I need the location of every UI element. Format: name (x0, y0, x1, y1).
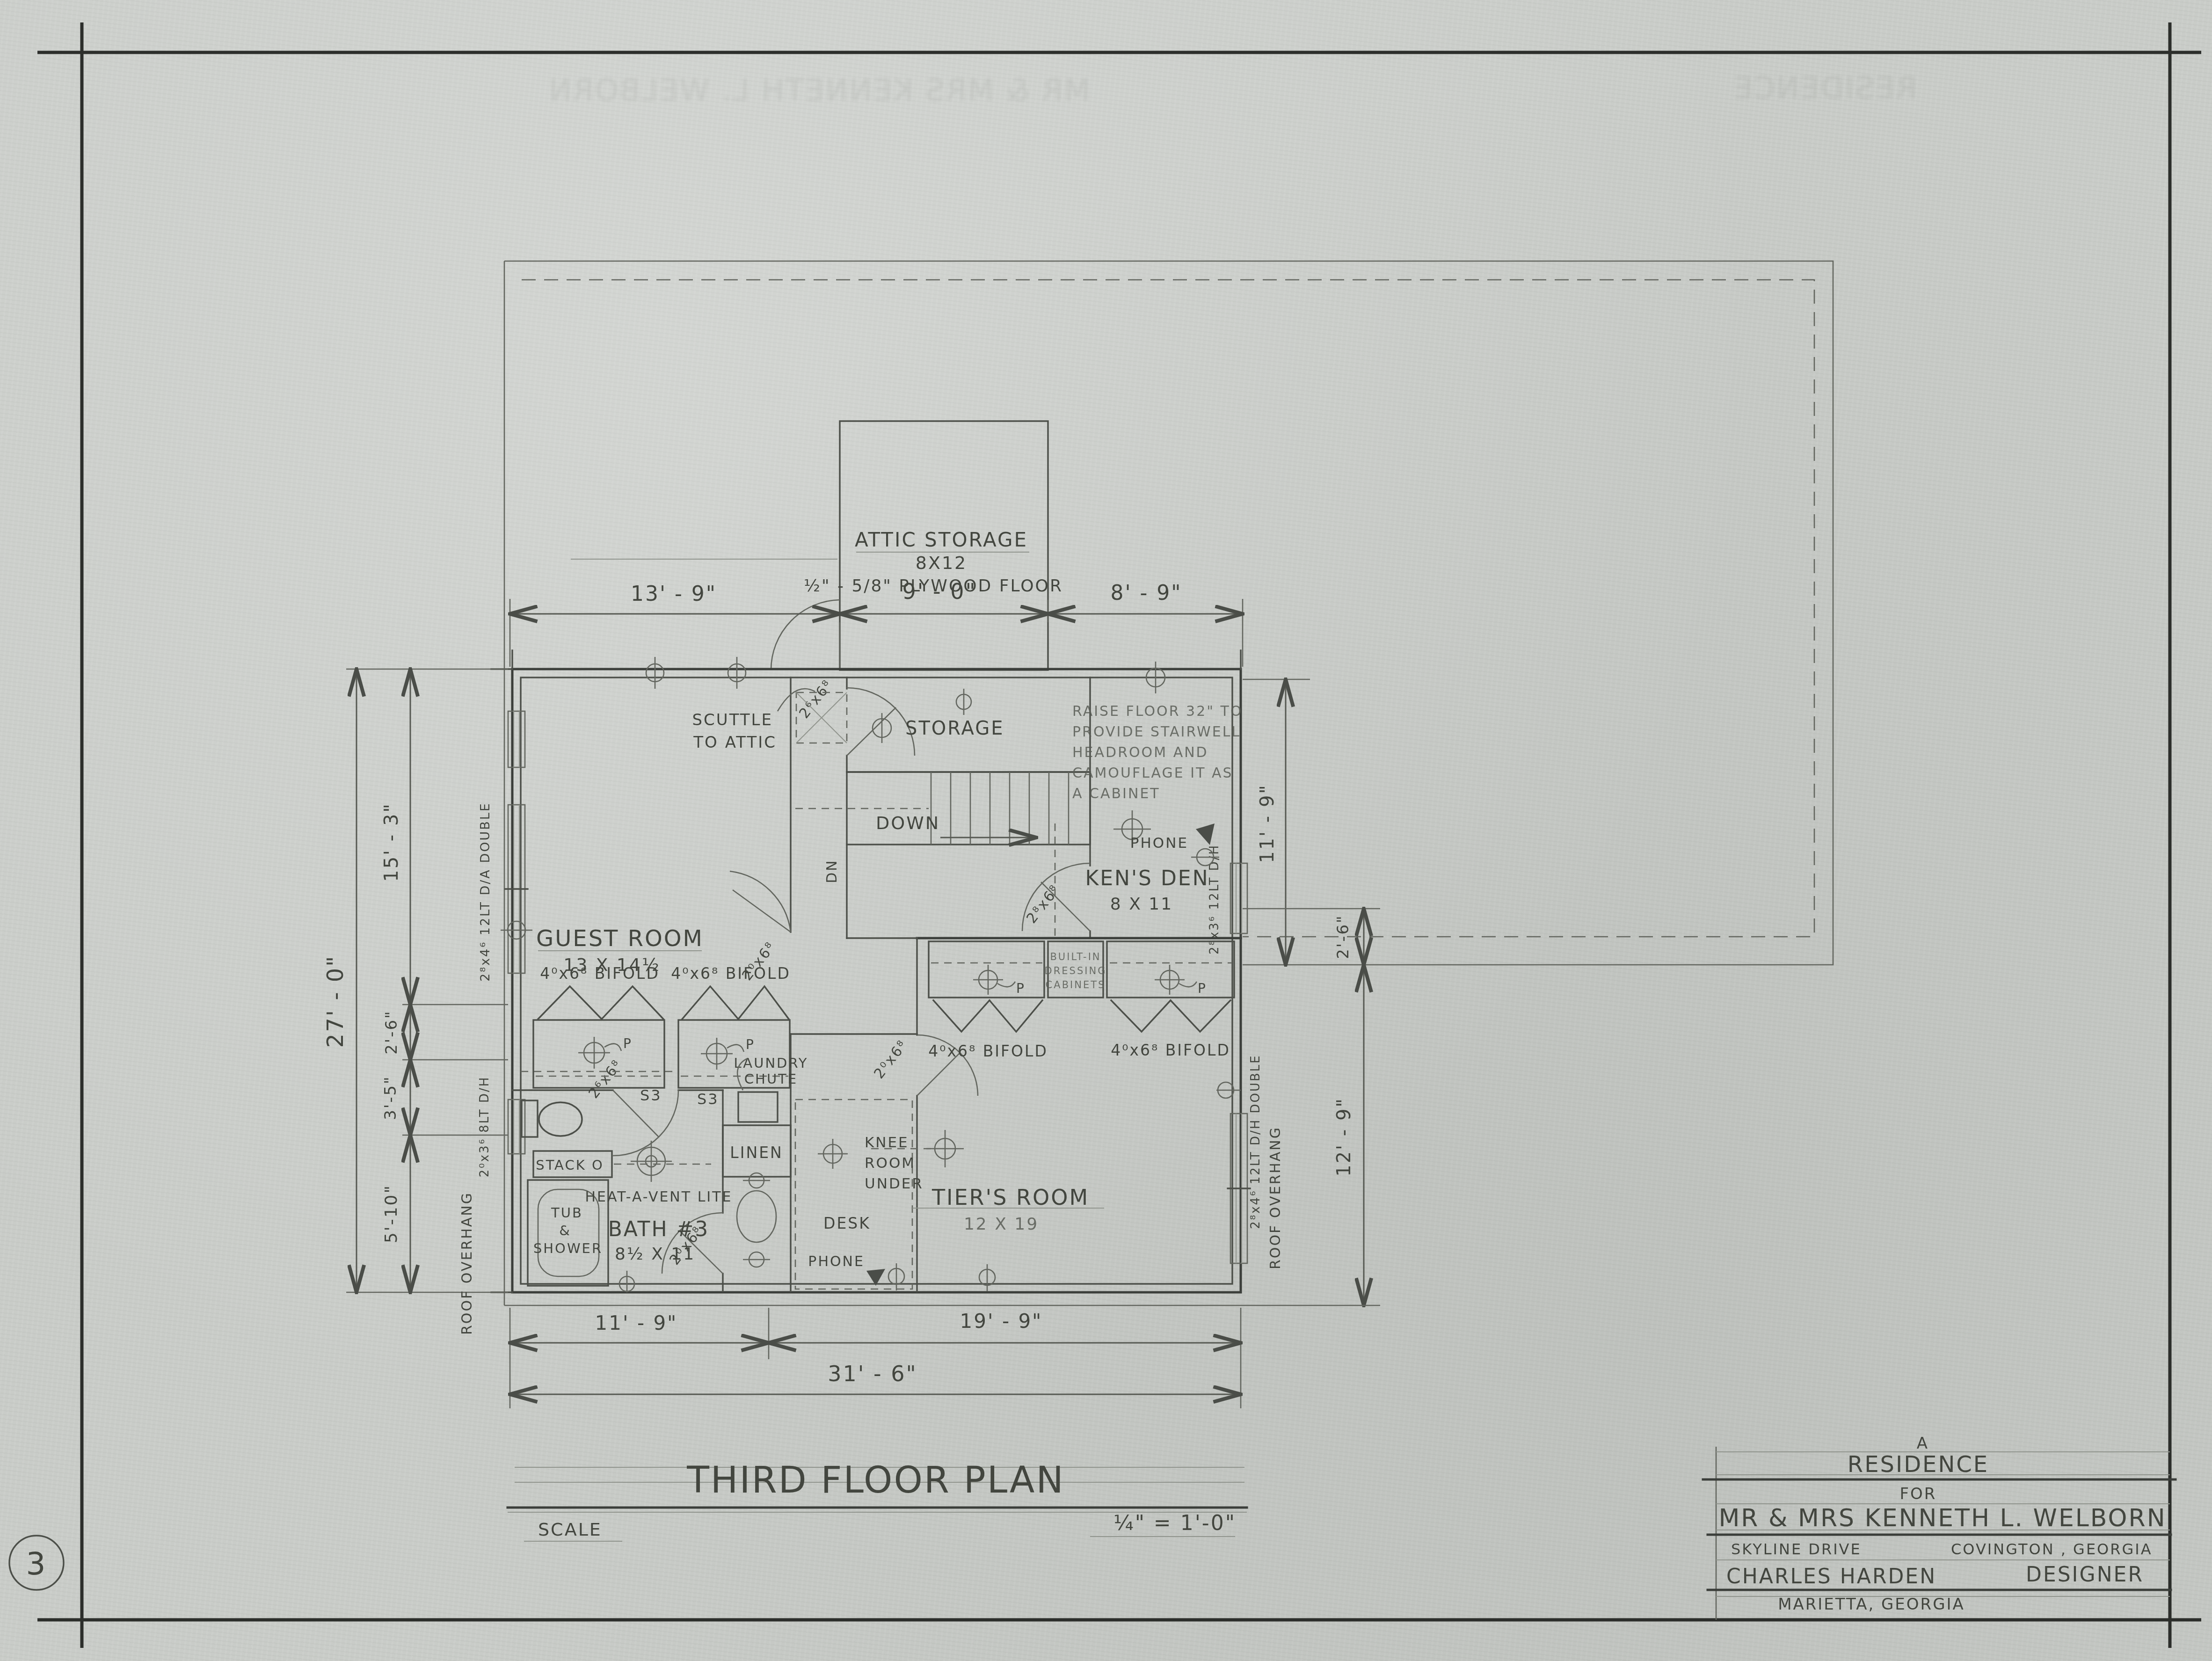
bifold-label-guest-1: 4⁰x6⁸ BIFOLD (540, 964, 660, 983)
den-size: 8 X 11 (1110, 894, 1173, 913)
attic-room-label: ATTIC STORAGE (855, 528, 1028, 551)
tub-label-1: TUB (551, 1205, 583, 1221)
door-label-tier: 2⁰x6⁸ (871, 1036, 911, 1081)
cabinet-label-1: BUILT-IN (1050, 951, 1101, 962)
roof-overhang-right: ROOF OVERHANG (1267, 1126, 1283, 1269)
blueprint-sheet: MR & MRS KENNETH L. WELBORN RESIDENCE 3 … (0, 0, 2212, 1661)
drawing-title-text: THIRD FLOOR PLAN (686, 1459, 1065, 1501)
svg-text:MR & MRS KENNETH L. WELBORN: MR & MRS KENNETH L. WELBORN (547, 73, 1090, 108)
pull-chain-4: P (1198, 981, 1207, 996)
page-number: 3 (9, 1536, 64, 1590)
dim-right-2-6: 2'-6" (1333, 914, 1352, 959)
cabinet-label-2: DRESSING (1045, 965, 1107, 976)
dimension-bottom: 11' - 9" 19' - 9" 31' - 6" (510, 1308, 1241, 1408)
bifold-label-tier-1: 4⁰x6⁸ BIFOLD (928, 1042, 1048, 1060)
tiers-label: TIER'S ROOM (931, 1185, 1089, 1210)
tb-designer-city: MARIETTA, GEORGIA (1778, 1595, 1965, 1613)
switch-s3-bath: S3 (640, 1086, 662, 1104)
dim-left-15-3: 15' - 3" (380, 802, 402, 882)
heat-vent-label: HEAT-A-VENT LITE (585, 1188, 733, 1205)
tb-city: COVINGTON , GEORGIA (1951, 1540, 2153, 1558)
tier-closets: 4⁰x6⁸ BIFOLD P BUILT-IN DRESSING CABINET… (928, 941, 1234, 1060)
dim-top-13-9: 13' - 9" (631, 582, 717, 605)
dim-bottom-31-6: 31' - 6" (828, 1361, 917, 1386)
dim-left-5-10: 5'-10" (381, 1184, 400, 1243)
cabinet-label-3: CABINETS (1046, 979, 1106, 991)
dim-right-12-9: 12' - 9" (1333, 1097, 1354, 1177)
stairs-dn-label: DN (823, 859, 840, 883)
scale-value: ¼" = 1'-0" (1113, 1511, 1236, 1535)
dim-bottom-19-9: 19' - 9" (960, 1310, 1043, 1333)
storage-label: STORAGE (905, 717, 1004, 739)
storage-room: STORAGE (847, 713, 1090, 772)
bath-label: BATH #3 (608, 1217, 710, 1241)
tb-designer-title: DESIGNER (2026, 1562, 2144, 1586)
attic-storage: ATTIC STORAGE 8X12 ½" - 5/8" PLYWOOD FLO… (771, 421, 1063, 670)
dim-top-8-9: 8' - 9" (1110, 581, 1182, 605)
desk-label: DESK (823, 1214, 871, 1232)
switch-s3-hall: S3 (697, 1090, 719, 1108)
scuttle-label-2: TO ATTIC (693, 733, 777, 751)
knee-label-3: UNDER (865, 1175, 924, 1192)
window-label-right-double: 2⁸x4⁶ 12LT D/H DOUBLE (1248, 1054, 1262, 1229)
wall-lights (501, 657, 971, 939)
linen-closet: LINEN (723, 1125, 791, 1177)
dim-top-9-0: 9' - 0" (902, 579, 976, 604)
den-label: KEN'S DEN (1085, 866, 1209, 890)
knee-label-1: KNEE (865, 1134, 909, 1151)
raise-note-2: PROVIDE STAIRWELL (1072, 723, 1241, 740)
window-label-left-bath: 2⁰x3⁶ 8LT D/H (477, 1076, 491, 1178)
scuttle-label-1: SCUTTLE (692, 710, 773, 729)
tb-client: MR & MRS KENNETH L. WELBORN (1718, 1504, 2166, 1532)
door-label-den: 2⁸x6⁸ (1023, 881, 1063, 926)
window-guest-left-double (505, 805, 528, 973)
drawing-title: THIRD FLOOR PLAN SCALE ¼" = 1'-0" (508, 1459, 1247, 1541)
knee-label-2: ROOM (865, 1154, 916, 1171)
dimension-left: 27' - 0" 15' - 3" 2'-6" 3'-5" 5'-10" ROO… (322, 669, 508, 1335)
raise-note-3: HEADROOM AND (1072, 744, 1208, 760)
bifold-label-guest-2: 4⁰x6⁸ BIFOLD (671, 964, 791, 983)
window-guest-left (508, 711, 525, 767)
raise-note-1: RAISE FLOOR 32" TO (1072, 703, 1243, 719)
page-number-text: 3 (26, 1546, 47, 1582)
bath-size: 8½ X 11 (615, 1244, 695, 1263)
pull-chain-2: P (746, 1037, 755, 1052)
dim-bottom-11-9: 11' - 9" (595, 1311, 678, 1334)
dim-right-11-9: 11' - 9" (1256, 784, 1278, 863)
roof-overhang-left: ROOF OVERHANG (458, 1192, 475, 1335)
roof-overhang-outline (504, 261, 1833, 1305)
stack-label: STACK O (536, 1157, 604, 1173)
linen-label: LINEN (730, 1144, 783, 1162)
bleed-through-text: MR & MRS KENNETH L. WELBORN RESIDENCE (547, 71, 1917, 108)
raise-note-4: CAMOUFLAGE IT AS (1072, 765, 1233, 781)
tb-for: FOR (1900, 1484, 1937, 1503)
raise-note-5: A CABINET (1072, 785, 1160, 801)
dim-left-2-6: 2'-6" (382, 1010, 400, 1055)
vanity (737, 1173, 776, 1267)
toilet (522, 1100, 582, 1137)
svg-text:RESIDENCE: RESIDENCE (1732, 71, 1917, 105)
attic-room-size: 8X12 (916, 553, 968, 573)
pull-chain-3: P (1016, 981, 1026, 996)
scale-label: SCALE (538, 1519, 602, 1540)
tier-phone: PHONE (808, 1253, 904, 1290)
tb-a: A (1917, 1434, 1929, 1452)
tb-street: SKYLINE DRIVE (1731, 1540, 1862, 1558)
tb-designer: CHARLES HARDEN (1726, 1564, 1936, 1588)
den-phone: PHONE (1130, 823, 1219, 866)
tiers-size: 12 X 19 (964, 1214, 1039, 1233)
dim-left-27-0: 27' - 0" (322, 955, 348, 1048)
tier-phone-label: PHONE (808, 1253, 865, 1269)
laundry-chute-label-2: CHUTE (744, 1071, 798, 1087)
laundry-chute-label-1: LAUNDRY (734, 1055, 808, 1071)
door-label-storage: 2⁶x6⁸ (796, 676, 836, 721)
dimension-right: 11' - 9" 2'-6" 12' - 9" ROOF OVERHANG (1243, 679, 1380, 1305)
tub-label-3: SHOWER (533, 1240, 603, 1256)
window-tier-right (1228, 1114, 1250, 1263)
window-label-left-double: 2⁸x4⁶ 12LT D/A DOUBLE (478, 802, 492, 982)
tub-label-2: & (559, 1223, 571, 1238)
bath-room: STACK O TUB & SHOWER HEAT-A-VENT LITE BA… (522, 1100, 733, 1292)
stairs-down-label: DOWN (876, 813, 940, 833)
bifold-label-tier-2: 4⁰x6⁸ BIFOLD (1111, 1041, 1230, 1059)
stairs: DOWN DN (795, 772, 1090, 883)
guest-room-label: GUEST ROOM (536, 925, 704, 951)
dim-left-3-5: 3'-5" (381, 1075, 400, 1120)
sheet-border (37, 22, 2201, 1648)
den-phone-label: PHONE (1130, 834, 1188, 851)
pull-chain-1: P (623, 1036, 633, 1051)
title-block: A RESIDENCE FOR MR & MRS KENNETH L. WELB… (1703, 1434, 2176, 1620)
tb-residence: RESIDENCE (1848, 1451, 1989, 1477)
